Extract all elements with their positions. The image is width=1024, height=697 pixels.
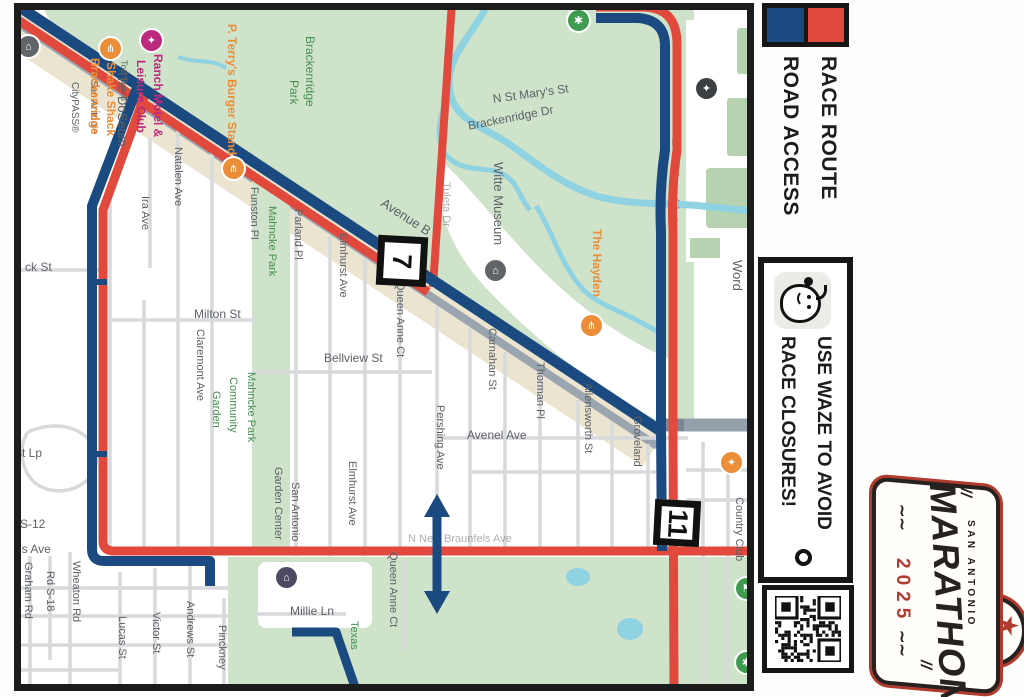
qr-code <box>775 596 841 662</box>
incarnate-word-school-icon: ✦ <box>696 78 717 99</box>
waze-message-line1: USE WAZE TO AVOID <box>805 336 841 568</box>
waze-message: USE WAZE TO AVOID RACE CLOSURES! <box>769 336 841 568</box>
mile-marker-11: 11 <box>653 499 701 547</box>
mile-marker-number: 11 <box>661 508 693 538</box>
waze-wheel-dot <box>795 549 812 566</box>
park-paw-icon: ✱ <box>568 10 589 31</box>
road-access-color-swatch <box>808 8 845 42</box>
park-icon: ✱ <box>736 652 754 673</box>
waze-message-line2: RACE CLOSURES! <box>769 336 805 568</box>
mile-marker-7: 7 <box>376 235 429 288</box>
poi-icons: ⌂⋔✦⋔✱⌂⋔✦✦⚑✱⌂ <box>14 3 754 691</box>
garden-center-museum-icon: ⌂ <box>276 567 297 588</box>
logo-squiggle: ∼∼ <box>892 504 912 531</box>
waze-icon <box>781 279 825 323</box>
race-route-color-swatch <box>767 8 804 42</box>
waze-eye <box>807 295 811 299</box>
marathon-logo-badge: ★ SAN ANTONIO MARATHON 2025 ∼∼ ∼∼ // // <box>868 478 1008 693</box>
legend-labels: RACE ROUTE ROAD ACCESS <box>769 56 847 228</box>
waze-eye <box>807 305 811 309</box>
doseum-museum-icon: ⌂ <box>18 36 39 57</box>
witte-museum-icon: ⌂ <box>485 260 506 281</box>
mile-marker-number: 7 <box>386 253 418 270</box>
logo-year: 2025 <box>891 558 913 624</box>
golf-flag-icon: ⚑ <box>736 578 754 599</box>
ranch-motel-icon: ✦ <box>141 30 162 51</box>
qr-code-box <box>762 585 854 673</box>
logo-squiggle: ∼∼ <box>892 630 912 657</box>
scanned-race-map-flyer: Tuleta DrE Hildebrand AveN New Braunfels… <box>0 0 1024 697</box>
star-icon: ★ <box>993 614 1024 637</box>
shopping-icon: ✦ <box>721 452 742 473</box>
logo-hatch: // <box>956 488 974 497</box>
hayden-restaurant-icon: ⋔ <box>581 315 602 336</box>
waze-smile <box>797 290 807 307</box>
race-route-label: RACE ROUTE <box>809 56 847 228</box>
road-access-label: ROAD ACCESS <box>771 56 809 228</box>
p-terrys-restaurant-icon: ⋔ <box>223 158 244 179</box>
legend-color-key <box>762 3 849 47</box>
logo-hatch: // <box>916 660 934 669</box>
waze-wheel <box>804 277 813 286</box>
race-map: Tuleta DrE Hildebrand AveN New Braunfels… <box>14 3 754 691</box>
shake-shack-restaurant-icon: ⋔ <box>100 38 121 59</box>
